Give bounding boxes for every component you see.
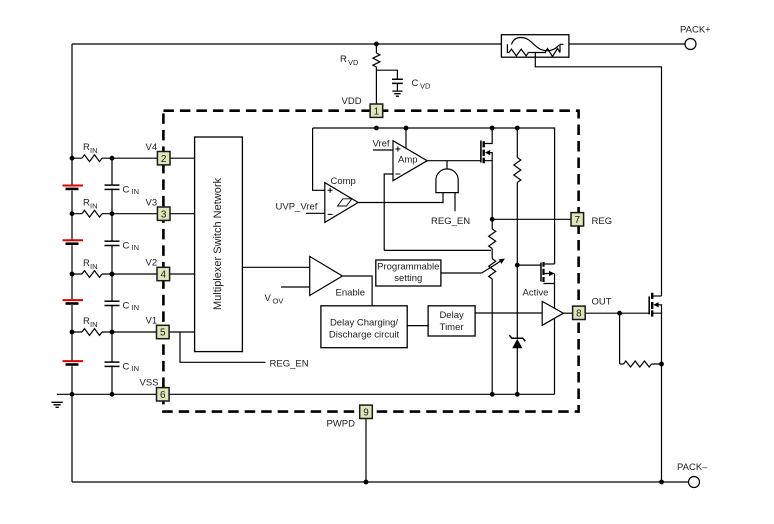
- svg-text:5: 5: [160, 328, 166, 339]
- svg-text:C: C: [123, 300, 130, 311]
- svg-text:Comp: Comp: [331, 176, 356, 187]
- svg-text:PWPD: PWPD: [327, 418, 356, 429]
- svg-text:R: R: [340, 54, 347, 65]
- svg-text:Enable: Enable: [336, 288, 366, 299]
- svg-text:OUT: OUT: [592, 296, 612, 307]
- svg-text:IN: IN: [90, 262, 98, 271]
- svg-text:OV: OV: [273, 296, 284, 305]
- svg-text:REG_EN: REG_EN: [431, 216, 470, 227]
- svg-text:C: C: [123, 240, 130, 251]
- svg-text:IN: IN: [132, 364, 140, 373]
- svg-text:Active: Active: [523, 288, 549, 299]
- svg-text:2: 2: [161, 154, 167, 165]
- svg-text:IN: IN: [132, 243, 140, 252]
- svg-text:V4: V4: [146, 142, 158, 153]
- svg-text:setting: setting: [394, 273, 422, 284]
- svg-text:Timer: Timer: [440, 322, 464, 333]
- svg-text:4: 4: [161, 270, 167, 281]
- svg-text:IN: IN: [132, 303, 140, 312]
- svg-text:Programmable: Programmable: [377, 261, 439, 272]
- svg-text:8: 8: [576, 308, 582, 319]
- svg-text:VD: VD: [348, 58, 359, 67]
- svg-text:7: 7: [575, 215, 581, 226]
- svg-text:Discharge circuit: Discharge circuit: [329, 329, 400, 340]
- svg-text:PACK–: PACK–: [677, 462, 708, 473]
- svg-text:R: R: [83, 316, 90, 327]
- svg-text:C: C: [123, 184, 130, 195]
- svg-text:C: C: [412, 78, 419, 89]
- svg-text:Amp: Amp: [398, 155, 418, 166]
- svg-text:R: R: [83, 198, 90, 209]
- svg-text:V2: V2: [146, 258, 158, 269]
- svg-text:Vref: Vref: [373, 139, 390, 150]
- svg-text:6: 6: [160, 390, 166, 401]
- svg-text:V1: V1: [146, 316, 158, 327]
- svg-text:PACK+: PACK+: [680, 25, 711, 36]
- svg-text:V: V: [265, 293, 272, 304]
- svg-text:VD: VD: [420, 81, 431, 90]
- svg-text:R: R: [83, 258, 90, 269]
- svg-text:VSS: VSS: [140, 378, 159, 389]
- svg-text:R: R: [83, 142, 90, 153]
- svg-text:UVP_Vref: UVP_Vref: [276, 201, 318, 212]
- svg-text:C: C: [123, 361, 130, 372]
- svg-text:V3: V3: [146, 197, 158, 208]
- svg-text:IN: IN: [132, 187, 140, 196]
- svg-text:9: 9: [363, 407, 369, 418]
- svg-text:REG: REG: [592, 216, 613, 227]
- svg-text:Delay: Delay: [439, 310, 464, 321]
- svg-text:Delay Charging/: Delay Charging/: [330, 317, 398, 328]
- svg-text:IN: IN: [90, 202, 98, 211]
- svg-text:Multiplexer Switch Network: Multiplexer Switch Network: [212, 177, 224, 310]
- svg-text:VDD: VDD: [342, 96, 362, 107]
- svg-text:IN: IN: [90, 146, 98, 155]
- svg-text:1: 1: [374, 106, 380, 117]
- svg-text:IN: IN: [90, 320, 98, 329]
- svg-text:3: 3: [161, 209, 167, 220]
- svg-text:REG_EN: REG_EN: [270, 358, 309, 369]
